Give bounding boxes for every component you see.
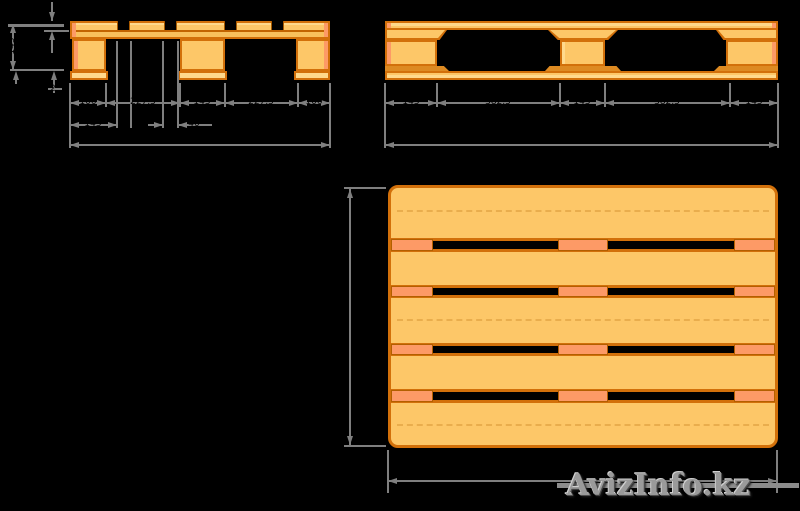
extension-line xyxy=(44,30,69,32)
dim-label-block-length: 145 xyxy=(562,97,602,107)
dim-arrow xyxy=(605,100,614,106)
dim-label-deck-board-width: 145 xyxy=(75,119,111,129)
dim-label-block-spacing: 227,5 xyxy=(125,97,161,107)
end-grain-strip xyxy=(387,23,391,28)
stringer-through-gap xyxy=(734,344,775,355)
dim-arrow xyxy=(347,436,353,445)
stringer-through-gap xyxy=(558,239,608,251)
end-grain-strip xyxy=(772,42,776,64)
extension-line xyxy=(69,83,71,148)
deck-gap xyxy=(433,392,558,400)
dim-arrow xyxy=(437,100,446,106)
deck-gap xyxy=(608,346,734,353)
deck-gap xyxy=(608,241,734,249)
dim-arrow xyxy=(347,189,353,198)
deck-board-gap xyxy=(271,21,284,30)
extension-line xyxy=(777,83,779,148)
extension-line xyxy=(130,41,132,128)
dim-label-overall-height: 145 xyxy=(7,33,17,59)
deck-board-gap xyxy=(164,21,177,30)
dim-label-center-block-width: 145 xyxy=(184,97,220,107)
dim-arrow xyxy=(388,478,397,484)
dim-label-total-length: 1200 xyxy=(561,136,601,146)
extension-line xyxy=(387,450,389,493)
stringer-through-gap xyxy=(558,344,608,355)
dim-label-block-width: 100 xyxy=(296,97,332,107)
dim-arrow xyxy=(10,24,16,33)
dim-label-block-width: 100 xyxy=(70,97,106,107)
deck-gap xyxy=(433,241,558,249)
dim-arrow xyxy=(385,142,394,148)
dim-arrow xyxy=(225,100,234,106)
dim-label-bottom-board-thickness: 22 xyxy=(42,84,58,94)
dim-arrow xyxy=(321,142,330,148)
stringer-board xyxy=(716,30,778,40)
bottom-board xyxy=(294,71,330,80)
dim-label-top-board-thickness: 22 xyxy=(33,2,49,12)
block xyxy=(385,40,437,66)
extension-line xyxy=(329,83,331,148)
dim-arrow xyxy=(70,142,79,148)
extension-line xyxy=(384,83,386,148)
deck-board-gap xyxy=(224,21,237,30)
end-grain-strip xyxy=(387,42,391,64)
deck-board-row xyxy=(72,23,328,30)
dim-label-pallet-width: 800 xyxy=(335,303,345,331)
stringer-board-edge xyxy=(72,32,328,37)
dim-label-block-length: 145 xyxy=(391,97,431,107)
bottom-board xyxy=(385,71,778,80)
dimension-line xyxy=(349,188,351,446)
deck-gap xyxy=(608,288,734,295)
block xyxy=(726,40,778,66)
stringer-through-gap xyxy=(391,239,433,251)
deck-board-gap xyxy=(117,21,130,30)
extension-line xyxy=(15,80,17,84)
dim-arrow xyxy=(721,100,730,106)
board-texture-line xyxy=(397,210,769,212)
end-grain-strip xyxy=(772,23,776,28)
dim-label-deck-board-gap: 40 xyxy=(180,119,208,129)
extension-line xyxy=(8,24,64,27)
stringer-through-gap xyxy=(558,286,608,297)
pallet-deck xyxy=(388,185,778,448)
extension-line xyxy=(162,41,164,128)
extension-line xyxy=(177,41,179,128)
board-texture-line xyxy=(397,319,769,321)
block xyxy=(560,40,605,66)
dim-arrow xyxy=(49,31,55,40)
end-grain-strip xyxy=(74,41,78,69)
end-grain-strip xyxy=(324,23,328,37)
dim-arrow xyxy=(551,100,560,106)
stringer-through-gap xyxy=(391,286,433,297)
end-grain-strip xyxy=(324,41,328,69)
stringer-through-gap xyxy=(391,390,433,402)
deck-gap xyxy=(608,392,734,400)
stringer-through-gap xyxy=(391,344,433,355)
stringer-board xyxy=(385,30,447,40)
dim-arrow xyxy=(51,71,57,80)
dim-label-window-length: 382,5 xyxy=(647,97,687,107)
dim-arrow xyxy=(171,100,180,106)
dim-label-total-width: 800 xyxy=(206,136,242,146)
bottom-board xyxy=(70,71,108,80)
pallet-technical-drawing: 100 227,5 145 227,5 100 145 40 800 22 14… xyxy=(0,0,800,511)
dim-label-window-length: 382,5 xyxy=(478,97,518,107)
dim-arrow xyxy=(13,71,19,80)
stringer-through-gap xyxy=(734,286,775,297)
dim-arrow xyxy=(49,12,55,21)
extension-line xyxy=(116,41,118,128)
dim-label-block-length: 145 xyxy=(734,97,774,107)
stringer-through-gap xyxy=(734,239,775,251)
extension-line xyxy=(51,40,53,53)
stringer-through-gap xyxy=(734,390,775,402)
end-grain-strip xyxy=(72,23,76,37)
dim-arrow xyxy=(769,142,778,148)
deck-gap xyxy=(433,346,558,353)
dim-arrow xyxy=(154,122,163,128)
dimension-line xyxy=(70,144,330,146)
bottom-board xyxy=(178,71,227,80)
dim-label-block-spacing: 227,5 xyxy=(243,97,279,107)
deck-gap xyxy=(433,288,558,295)
stringer-board xyxy=(548,30,618,40)
board-texture-line xyxy=(397,424,769,426)
watermark-text: AvizInfo.kz xyxy=(566,468,800,504)
dim-arrow xyxy=(106,100,115,106)
stringer-through-gap xyxy=(558,390,608,402)
block xyxy=(180,39,225,71)
top-deck-board xyxy=(385,21,778,30)
